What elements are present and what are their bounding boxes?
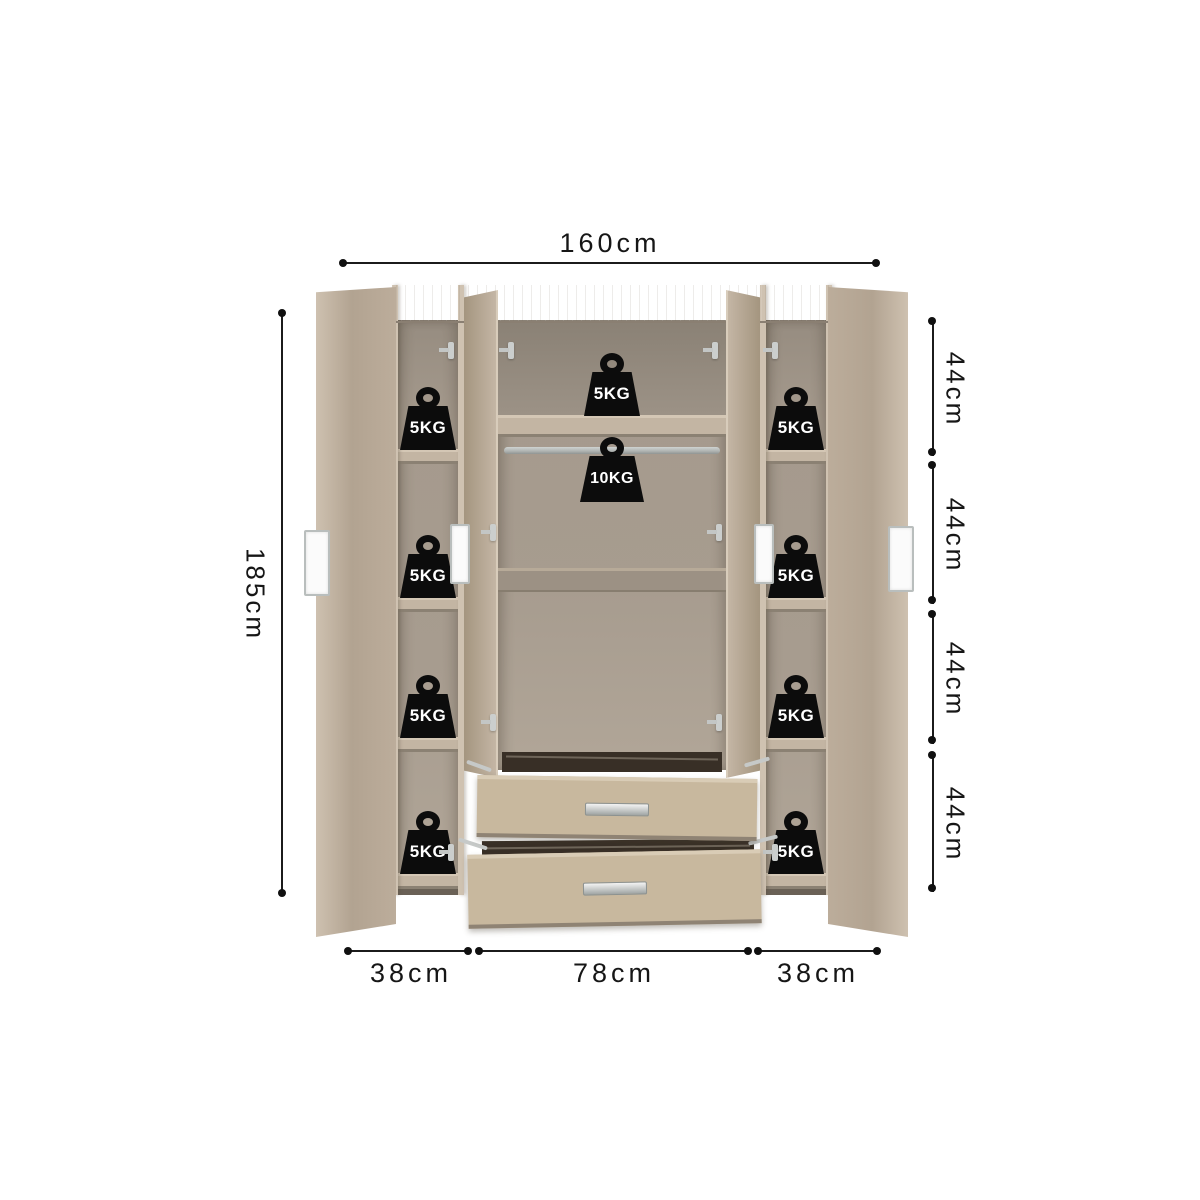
dimension-dot xyxy=(928,461,936,469)
dimension-line-bottom-right xyxy=(758,950,879,952)
right-column-shelf xyxy=(762,449,828,464)
left-column-base-shadow xyxy=(398,889,458,895)
right-column-shelf xyxy=(762,597,828,612)
weight-body-icon: 5KG xyxy=(400,554,456,598)
weight-body-icon: 10KG xyxy=(580,456,644,502)
hinge xyxy=(716,714,722,731)
weight-ring-icon xyxy=(600,437,624,459)
weight-badge: 5KG xyxy=(768,811,824,874)
dimension-dot xyxy=(344,947,352,955)
weight-body-icon: 5KG xyxy=(400,694,456,738)
dimension-line-bottom-center xyxy=(479,950,750,952)
weight-badge: 5KG xyxy=(400,387,456,450)
hinge xyxy=(508,342,514,359)
hinge xyxy=(490,524,496,541)
hinge xyxy=(448,342,454,359)
left-column-shelf xyxy=(396,449,462,464)
dimension-dot xyxy=(278,309,286,317)
weight-label: 5KG xyxy=(778,842,814,862)
dimension-label-section-2: 44cm xyxy=(940,481,971,591)
dimension-label-total-height: 185cm xyxy=(240,510,271,680)
weight-ring-icon xyxy=(416,387,440,409)
dimension-dot xyxy=(754,947,762,955)
hinge xyxy=(772,844,778,861)
left-door-handle xyxy=(304,530,330,596)
dimension-line-top xyxy=(343,262,878,264)
wardrobe-dimension-diagram: 5KG 5KG 5KG 5KG 5KG 5KG 5KG 5KG 5KG 10KG… xyxy=(0,0,1200,1200)
weight-ring-icon xyxy=(784,811,808,833)
center-top-shelf xyxy=(498,415,726,437)
dimension-line-right-2 xyxy=(932,465,934,604)
dimension-dot xyxy=(278,889,286,897)
dimension-label-bottom-left: 38cm xyxy=(331,958,491,989)
weight-badge: 5KG xyxy=(400,535,456,598)
weight-label: 10KG xyxy=(590,470,634,488)
dimension-dot xyxy=(873,947,881,955)
weight-ring-icon xyxy=(416,675,440,697)
weight-body-icon: 5KG xyxy=(768,694,824,738)
weight-ring-icon xyxy=(784,535,808,557)
weight-label: 5KG xyxy=(410,566,446,586)
right-door-handle xyxy=(888,526,914,592)
hinge xyxy=(712,342,718,359)
right-door xyxy=(828,287,908,937)
carcass-panel-edge xyxy=(458,285,464,895)
dimension-line-left xyxy=(281,313,283,895)
middle-left-door-handle xyxy=(450,524,470,584)
left-door xyxy=(316,287,396,937)
left-column-bottom-board xyxy=(396,873,462,889)
weight-badge: 5KG xyxy=(400,811,456,874)
dimension-label-bottom-right: 38cm xyxy=(738,958,898,989)
dimension-dot xyxy=(744,947,752,955)
weight-ring-icon xyxy=(600,353,624,375)
lower-drawer xyxy=(467,849,761,929)
lower-drawer-handle xyxy=(582,881,646,895)
weight-badge: 5KG xyxy=(768,535,824,598)
weight-body-icon: 5KG xyxy=(768,554,824,598)
right-column-base-shadow xyxy=(766,889,826,895)
hinge xyxy=(448,844,454,861)
dimension-line-right-3 xyxy=(932,614,934,744)
middle-right-door-handle xyxy=(754,524,774,584)
carcass-panel-edge xyxy=(760,285,766,895)
weight-ring-icon xyxy=(784,675,808,697)
weight-label: 5KG xyxy=(778,706,814,726)
dimension-dot xyxy=(928,751,936,759)
left-column-shelf xyxy=(396,597,462,612)
hinge xyxy=(490,714,496,731)
weight-badge: 5KG xyxy=(768,675,824,738)
weight-badge: 5KG xyxy=(584,353,640,416)
weight-ring-icon xyxy=(416,811,440,833)
weight-ring-icon xyxy=(784,387,808,409)
dimension-dot xyxy=(928,448,936,456)
hinge xyxy=(716,524,722,541)
dimension-dot xyxy=(872,259,880,267)
dimension-line-bottom-left xyxy=(348,950,470,952)
dimension-dot xyxy=(464,947,472,955)
weight-body-icon: 5KG xyxy=(768,406,824,450)
weight-label: 5KG xyxy=(410,706,446,726)
dimension-line-right-4 xyxy=(932,755,934,892)
upper-drawer-handle xyxy=(585,803,649,817)
weight-ring-icon xyxy=(416,535,440,557)
dimension-dot xyxy=(928,884,936,892)
weight-badge: 5KG xyxy=(400,675,456,738)
dimension-label-section-4: 44cm xyxy=(940,770,971,880)
dimension-dot xyxy=(928,596,936,604)
weight-label: 5KG xyxy=(410,418,446,438)
weight-badge: 10KG xyxy=(580,437,644,502)
weight-body-icon: 5KG xyxy=(400,406,456,450)
dimension-dot xyxy=(475,947,483,955)
weight-badge: 5KG xyxy=(768,387,824,450)
weight-label: 5KG xyxy=(594,384,630,404)
weight-body-icon: 5KG xyxy=(584,372,640,416)
dimension-label-bottom-center: 78cm xyxy=(534,958,694,989)
dimension-dot xyxy=(928,610,936,618)
hinge xyxy=(772,342,778,359)
dimension-label-section-1: 44cm xyxy=(940,335,971,445)
back-support-beam xyxy=(498,568,726,592)
right-column-bottom-board xyxy=(762,873,828,889)
top-board xyxy=(392,285,832,323)
dimension-dot xyxy=(928,317,936,325)
dimension-label-section-3: 44cm xyxy=(940,625,971,735)
left-column-shelf xyxy=(396,737,462,752)
dimension-dot xyxy=(928,736,936,744)
weight-label: 5KG xyxy=(778,418,814,438)
dimension-label-total-width: 160cm xyxy=(510,228,710,259)
dimension-dot xyxy=(339,259,347,267)
dimension-line-right-1 xyxy=(932,321,934,456)
right-column-shelf xyxy=(762,737,828,752)
upper-drawer xyxy=(477,775,758,841)
weight-label: 5KG xyxy=(778,566,814,586)
